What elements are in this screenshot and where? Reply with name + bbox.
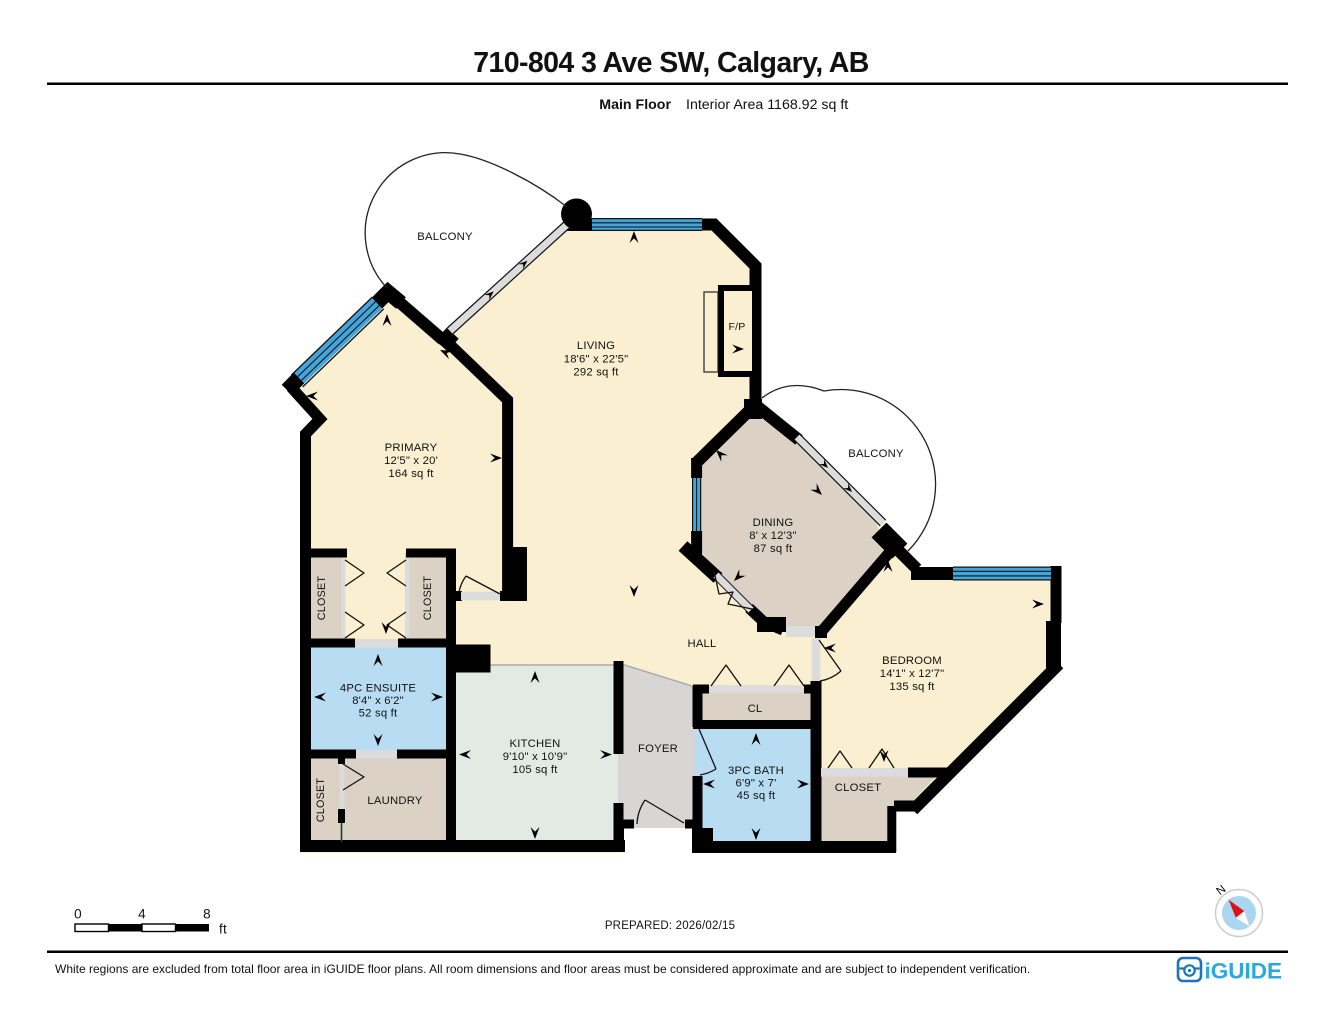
- svg-text:14'1" x 12'7": 14'1" x 12'7": [880, 668, 945, 680]
- svg-text:CLOSET: CLOSET: [316, 576, 328, 621]
- svg-text:White regions are excluded fro: White regions are excluded from total fl…: [55, 962, 1030, 976]
- svg-text:Interior Area 1168.92 sq ft: Interior Area 1168.92 sq ft: [686, 97, 848, 113]
- svg-text:BALCONY: BALCONY: [848, 448, 904, 460]
- svg-text:DINING: DINING: [753, 517, 794, 529]
- svg-text:4: 4: [138, 907, 146, 922]
- svg-text:KITCHEN: KITCHEN: [510, 738, 561, 750]
- svg-text:3PC BATH: 3PC BATH: [728, 765, 784, 777]
- svg-text:CL: CL: [748, 703, 763, 715]
- svg-text:HALL: HALL: [687, 638, 716, 650]
- svg-text:0: 0: [74, 907, 82, 922]
- svg-text:LAUNDRY: LAUNDRY: [367, 795, 422, 807]
- svg-text:PRIMARY: PRIMARY: [385, 442, 438, 454]
- svg-text:292 sq ft: 292 sq ft: [573, 367, 619, 379]
- svg-text:6'9" x 7': 6'9" x 7': [736, 778, 777, 790]
- svg-text:87 sq ft: 87 sq ft: [754, 543, 793, 555]
- svg-text:45 sq ft: 45 sq ft: [737, 790, 776, 802]
- svg-text:CLOSET: CLOSET: [422, 576, 434, 621]
- svg-text:8' x 12'3": 8' x 12'3": [749, 530, 796, 542]
- svg-text:F/P: F/P: [729, 321, 746, 333]
- svg-text:CLOSET: CLOSET: [835, 782, 881, 794]
- svg-text:4PC ENSUITE: 4PC ENSUITE: [340, 683, 417, 695]
- svg-text:ft: ft: [219, 922, 227, 937]
- svg-text:LIVING: LIVING: [577, 340, 615, 352]
- svg-text:12'5" x 20': 12'5" x 20': [384, 455, 438, 467]
- svg-text:Main Floor: Main Floor: [599, 97, 671, 113]
- svg-text:18'6" x 22'5": 18'6" x 22'5": [564, 354, 629, 366]
- svg-text:BEDROOM: BEDROOM: [882, 655, 942, 667]
- svg-text:105 sq ft: 105 sq ft: [512, 764, 558, 776]
- svg-text:52 sq ft: 52 sq ft: [359, 708, 398, 720]
- svg-text:8'4" x 6'2": 8'4" x 6'2": [352, 695, 404, 707]
- svg-text:164 sq ft: 164 sq ft: [388, 468, 434, 480]
- svg-text:135 sq ft: 135 sq ft: [889, 681, 935, 693]
- svg-text:PREPARED: 2026/02/15: PREPARED: 2026/02/15: [605, 920, 735, 932]
- svg-text:8: 8: [203, 907, 211, 922]
- svg-text:iGUIDE: iGUIDE: [1205, 959, 1283, 984]
- svg-text:FOYER: FOYER: [638, 743, 678, 755]
- svg-text:CLOSET: CLOSET: [315, 778, 327, 823]
- svg-text:710-804 3 Ave SW, Calgary, AB: 710-804 3 Ave SW, Calgary, AB: [473, 47, 869, 79]
- svg-text:9'10" x 10'9": 9'10" x 10'9": [503, 751, 568, 763]
- svg-text:BALCONY: BALCONY: [417, 231, 473, 243]
